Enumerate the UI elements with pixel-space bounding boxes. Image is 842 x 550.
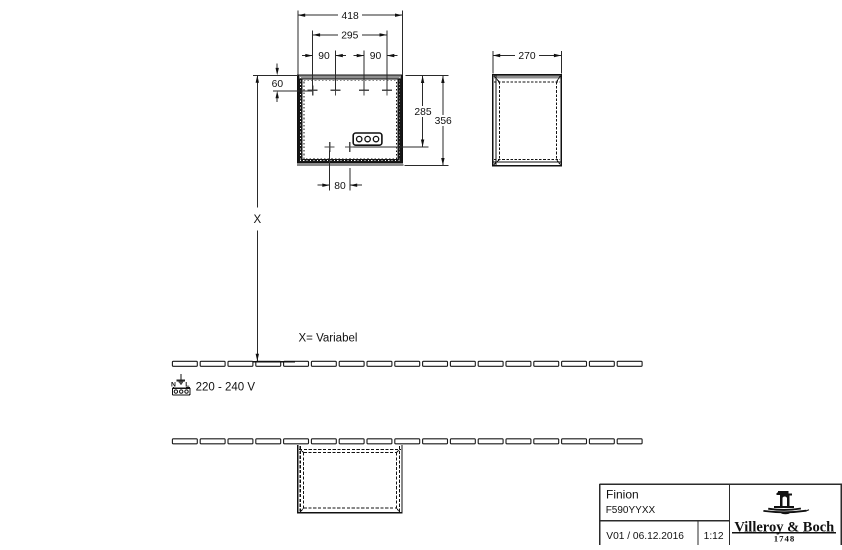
- svg-text:356: 356: [435, 116, 452, 127]
- svg-text:90: 90: [370, 51, 382, 62]
- svg-text:220 - 240 V: 220 - 240 V: [196, 381, 256, 393]
- svg-text:1:12: 1:12: [704, 531, 724, 542]
- svg-text:270: 270: [518, 51, 535, 62]
- svg-text:X= Variabel: X= Variabel: [299, 332, 358, 344]
- svg-text:X: X: [253, 214, 261, 226]
- svg-text:V01 / 06.12.2016: V01 / 06.12.2016: [606, 531, 684, 542]
- svg-text:80: 80: [334, 181, 346, 192]
- svg-text:F590YYXX: F590YYXX: [606, 505, 656, 516]
- svg-text:1748: 1748: [774, 534, 796, 544]
- svg-text:418: 418: [342, 11, 359, 22]
- svg-text:60: 60: [272, 79, 284, 90]
- svg-text:90: 90: [318, 51, 330, 62]
- svg-text:Finion: Finion: [606, 488, 639, 502]
- svg-text:295: 295: [341, 31, 358, 42]
- svg-text:285: 285: [414, 107, 431, 118]
